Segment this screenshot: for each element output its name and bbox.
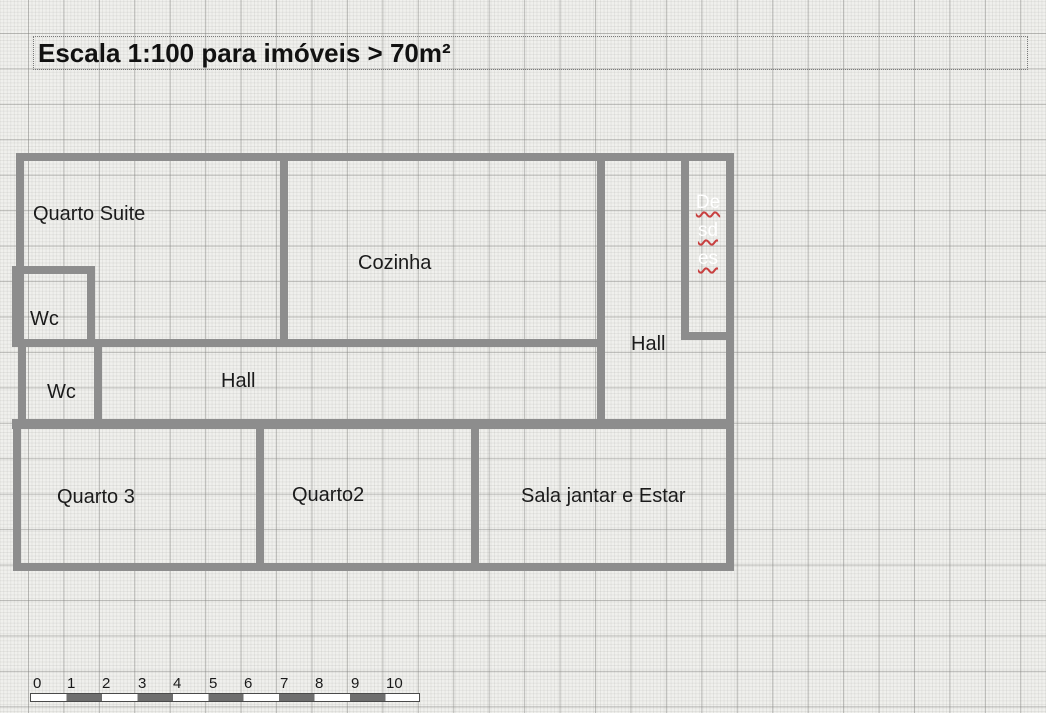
- ruler-label-5: 5: [209, 675, 217, 692]
- ruler-label-3: 3: [138, 675, 146, 692]
- room-label-hall-middle[interactable]: Hall: [221, 370, 255, 393]
- ruler-label-8: 8: [315, 675, 323, 692]
- wall-wc1-left: [12, 266, 20, 347]
- wall-hall-bottom: [12, 419, 734, 429]
- title-text: Escala 1:100 para imóveis > 70m²: [38, 38, 451, 68]
- wall-outer-top: [16, 153, 734, 161]
- ruler-label-7: 7: [280, 675, 288, 692]
- room-label-wc-suite[interactable]: Wc: [30, 308, 59, 331]
- wall-despensa-bottom: [681, 332, 734, 340]
- drawing-canvas: { "title": { "text": "Escala 1:100 para …: [0, 0, 1046, 713]
- wall-wc2-right: [94, 347, 102, 427]
- ruler-label-4: 4: [173, 675, 181, 692]
- room-label-quarto2[interactable]: Quarto2: [292, 484, 364, 507]
- wall-wc2-left: [18, 347, 26, 427]
- room-label-quarto-suite[interactable]: Quarto Suite: [33, 203, 145, 226]
- ruler-label-10: 10: [386, 675, 403, 692]
- room-label-sala[interactable]: Sala jantar e Estar: [521, 485, 686, 508]
- ruler-label-2: 2: [102, 675, 110, 692]
- wall-wc1-right: [87, 266, 95, 347]
- room-label-despensa[interactable]: De sd es: [684, 189, 732, 273]
- room-label-hall-right[interactable]: Hall: [631, 333, 665, 356]
- room-label-cozinha[interactable]: Cozinha: [358, 252, 431, 275]
- wall-mid-horizontal: [12, 339, 605, 347]
- room-label-wc-hall[interactable]: Wc: [47, 381, 76, 404]
- wall-wc1-top: [12, 266, 95, 274]
- ruler-label-0: 0: [33, 675, 41, 692]
- wall-outer-bottom: [13, 563, 734, 571]
- despensa-line-2: sd: [698, 217, 718, 245]
- ruler-label-1: 1: [67, 675, 75, 692]
- title-box[interactable]: Escala 1:100 para imóveis > 70m²: [33, 36, 1028, 70]
- despensa-line-1: De: [696, 189, 720, 217]
- ruler-label-9: 9: [351, 675, 359, 692]
- ruler-label-6: 6: [244, 675, 252, 692]
- ruler-bar: [30, 693, 420, 702]
- wall-cozinha-hall: [597, 153, 605, 429]
- room-label-quarto3[interactable]: Quarto 3: [57, 486, 135, 509]
- wall-q2-sala: [471, 425, 479, 567]
- despensa-line-3: es: [698, 245, 718, 273]
- wall-suite-cozinha: [280, 153, 288, 347]
- wall-outer-left-lower: [13, 419, 21, 571]
- wall-q3-q2: [256, 425, 264, 567]
